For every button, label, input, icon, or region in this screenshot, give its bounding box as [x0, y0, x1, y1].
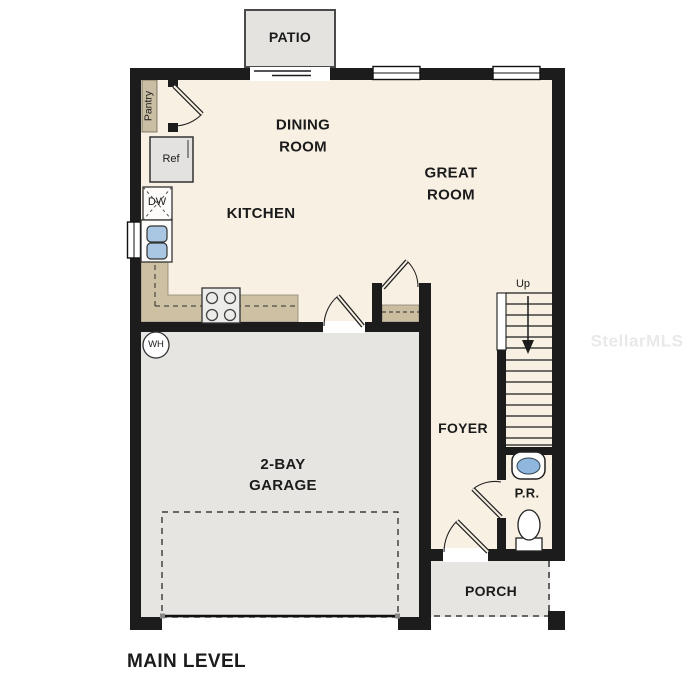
closet-shelf	[382, 305, 419, 322]
patio-label: PATIO	[269, 27, 311, 47]
dining-room-label-line2: ROOM	[276, 136, 330, 158]
great-room-label-line2: ROOM	[425, 184, 478, 206]
garage-label-line1: 2-BAY	[249, 454, 317, 475]
window	[493, 67, 540, 80]
plan-title: MAIN LEVEL	[127, 648, 246, 676]
kitchen-sink-icon	[141, 220, 172, 262]
dining-room-label: DININGROOM	[276, 114, 330, 158]
water-heater-label: WH	[148, 338, 164, 352]
window	[128, 222, 141, 258]
garage-label-line2: GARAGE	[249, 475, 317, 496]
refrigerator-label: Ref	[162, 152, 179, 168]
floor-plan: PATIO DININGROOM KITCHEN GREATROOM 2-BAY…	[0, 0, 687, 687]
dining-room-label-line1: DINING	[276, 114, 330, 136]
porch-label: PORCH	[465, 581, 517, 601]
kitchen-label: KITCHEN	[227, 203, 296, 225]
dishwasher-label: DW	[148, 195, 166, 211]
great-room-label-line1: GREAT	[425, 162, 478, 184]
pantry-label: Pantry	[141, 91, 156, 121]
patio-sliding-door	[250, 67, 330, 81]
floor-plan-drawing	[0, 0, 687, 687]
foyer-label: FOYER	[438, 418, 488, 438]
toilet-icon	[516, 510, 542, 551]
watermark: StellarMLS	[591, 330, 684, 355]
bathroom-sink-icon	[512, 452, 545, 479]
window	[373, 67, 420, 80]
powder-room-label: P.R.	[515, 485, 540, 504]
stove-icon	[202, 288, 240, 323]
garage-label: 2-BAYGARAGE	[249, 454, 317, 496]
stairs-up-label: Up	[516, 277, 530, 293]
great-room-label: GREATROOM	[425, 162, 478, 206]
